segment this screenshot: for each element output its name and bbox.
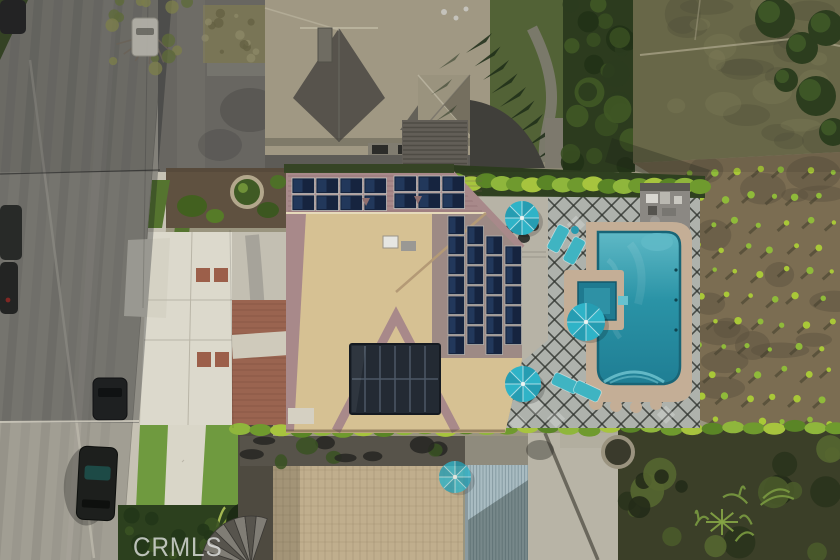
entry-walk xyxy=(231,331,289,359)
brick-accent xyxy=(214,268,228,282)
brick-accent xyxy=(215,352,229,367)
brick-accent xyxy=(196,268,210,282)
side-table xyxy=(571,226,579,234)
rooftop-unit xyxy=(383,236,398,248)
car-sunroof xyxy=(84,465,111,480)
atrium-window xyxy=(350,344,440,414)
stone-planter xyxy=(232,177,262,207)
top-band-haze xyxy=(0,0,840,172)
aerial-photo-canvas xyxy=(0,0,840,560)
rooftop-unit xyxy=(401,241,416,251)
crmls-watermark: CRMLS xyxy=(133,532,223,560)
sunlit-wire xyxy=(0,421,139,422)
solar-array-ridge xyxy=(292,176,465,211)
corrugated-pergola xyxy=(465,436,528,560)
neighbor-south xyxy=(118,425,840,560)
aerial-photo: CRMLS xyxy=(0,0,840,560)
brick-accent xyxy=(197,352,211,367)
south-house-roof xyxy=(273,463,463,560)
round-planter xyxy=(603,437,633,467)
spa-spillway xyxy=(618,296,628,305)
entry-step xyxy=(288,408,314,424)
beach-entry xyxy=(641,233,673,251)
parked-car-white xyxy=(132,18,158,56)
